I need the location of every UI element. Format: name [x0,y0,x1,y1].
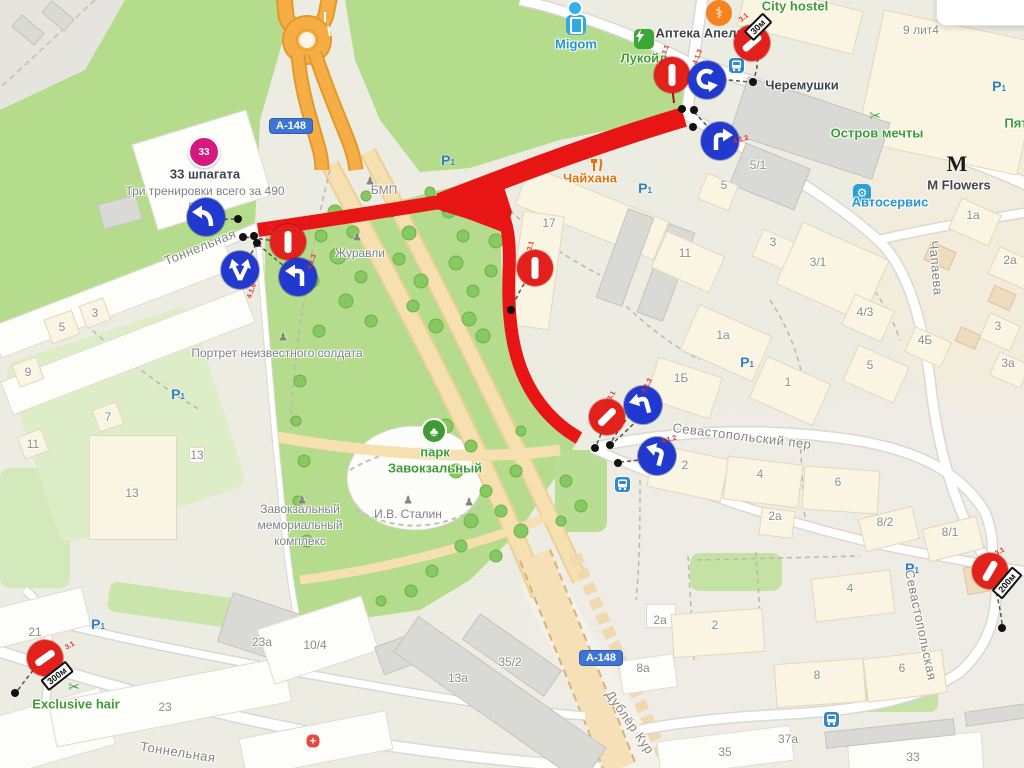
no-entry-sign-face [654,57,690,93]
traffic-sign-jcurve[interactable] [187,198,225,236]
route-waypoint-dot[interactable] [749,78,757,86]
mandatory-arrow-sign-face [688,61,726,99]
route-waypoint-dot[interactable] [234,215,242,223]
route-waypoint-dot[interactable] [689,123,697,131]
traffic-sign-uturn[interactable] [688,61,726,99]
route-waypoint-dot[interactable] [253,239,261,247]
route-waypoint-dot[interactable] [239,233,247,241]
sign-code-label: 3.1 [994,547,1006,558]
traffic-sign-noentry[interactable] [654,57,690,93]
traffic-sign-noentry[interactable] [517,250,553,286]
no-entry-sign-face [517,250,553,286]
route-waypoint-dot[interactable] [690,106,698,114]
route-waypoint-dot[interactable] [678,105,686,113]
route-waypoint-dot[interactable] [11,689,19,697]
mandatory-arrow-sign-face [187,198,225,236]
sign-code-label: 3.1 [661,44,671,56]
route-waypoint-dot[interactable] [591,444,599,452]
map-control-card[interactable] [936,0,1024,26]
sign-code-label: 3.1 [64,641,76,652]
route-waypoint-dot[interactable] [507,306,515,314]
signs-layer: 30м300м200м3.14.1.64.1.33.14.1.33.14.1.2… [0,0,1024,768]
map-canvas[interactable]: P1P1P1P1P1P1P1⚕✂✂M⚙33♣♟♟♟♟♟♟+ 5397111313… [0,0,1024,768]
route-waypoint-dot[interactable] [614,459,622,467]
route-waypoint-dot[interactable] [998,624,1006,632]
